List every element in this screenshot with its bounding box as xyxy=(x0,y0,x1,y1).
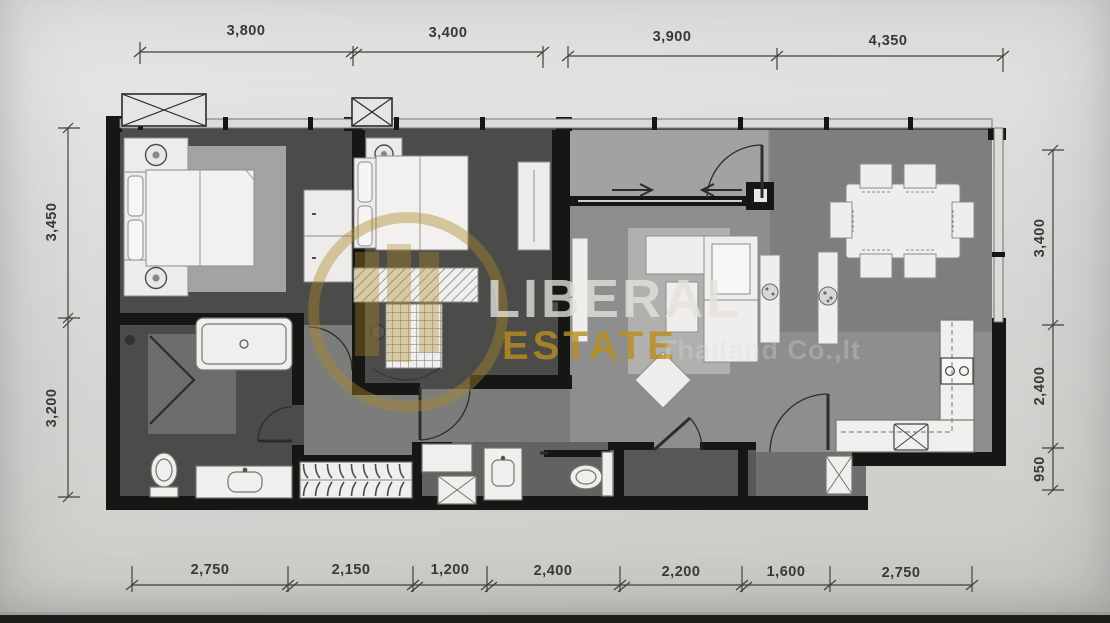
bathroom2-sliding-door xyxy=(540,450,610,457)
partition xyxy=(602,452,613,496)
nightstand-icon xyxy=(124,138,188,172)
dim-bottom-3: 1,200 xyxy=(431,562,470,578)
dim-right-1: 3,400 xyxy=(1032,219,1048,258)
kitchen-counter-icon xyxy=(836,420,974,452)
dining-chair-icon xyxy=(904,254,936,278)
floor-plan-drawing xyxy=(0,0,1110,623)
dresser-icon xyxy=(386,304,442,368)
dining-chair-icon xyxy=(904,164,936,188)
dining-chair-icon xyxy=(860,164,892,188)
dim-bottom-7: 2,750 xyxy=(882,565,921,581)
double-bed-icon xyxy=(124,170,254,266)
top-window-band xyxy=(120,119,992,128)
dim-bottom-1: 2,750 xyxy=(191,562,230,578)
toilet-icon xyxy=(570,465,602,489)
vanity-sink-icon xyxy=(484,448,522,500)
double-bed-icon xyxy=(354,156,468,250)
dim-right-3: 950 xyxy=(1032,456,1048,482)
tv-console-icon xyxy=(572,238,588,342)
dim-right-2: 2,400 xyxy=(1032,367,1048,406)
stool-icon xyxy=(371,325,385,339)
dim-left-1: 3,450 xyxy=(44,203,60,242)
wardrobe-icon xyxy=(518,162,550,250)
vanity-sink-icon xyxy=(196,466,292,498)
dim-bottom-6: 1,600 xyxy=(767,564,806,580)
dim-top-1: 3,800 xyxy=(227,23,266,39)
right-window-band xyxy=(994,128,1003,322)
toilet-icon xyxy=(150,453,178,497)
dining-table-icon xyxy=(846,184,960,258)
coffee-table-icon xyxy=(666,282,698,332)
dining-chair-icon xyxy=(952,202,974,238)
closet-fixtures xyxy=(300,462,412,498)
towel-hook-icon xyxy=(125,335,135,345)
stove-icon xyxy=(941,358,973,384)
dim-top-2: 3,400 xyxy=(429,25,468,41)
refrigerator-icon xyxy=(826,456,852,494)
console-plant-icon xyxy=(818,252,838,344)
bathtub-icon xyxy=(196,318,292,370)
dim-bottom-2: 2,150 xyxy=(332,562,371,578)
photo-edge xyxy=(0,615,1110,623)
dim-bottom-4: 2,400 xyxy=(534,563,573,579)
dim-top-4: 4,350 xyxy=(869,33,908,49)
wardrobe-icon xyxy=(304,190,352,282)
dim-top-3: 3,900 xyxy=(653,29,692,45)
dining-chair-icon xyxy=(860,254,892,278)
dining-chair-icon xyxy=(830,202,852,238)
side-table-plant-icon xyxy=(760,255,780,343)
floor-plan-photo: LIBERAL ESTATE Thailand Co.,lt 3,800 3,4… xyxy=(0,0,1110,623)
louver-cabinet-icon xyxy=(354,268,478,302)
dim-bottom-5: 2,200 xyxy=(662,564,701,580)
counter-icon xyxy=(422,444,472,472)
dim-left-2: 3,200 xyxy=(44,389,60,428)
washing-machine-icon xyxy=(438,476,476,504)
